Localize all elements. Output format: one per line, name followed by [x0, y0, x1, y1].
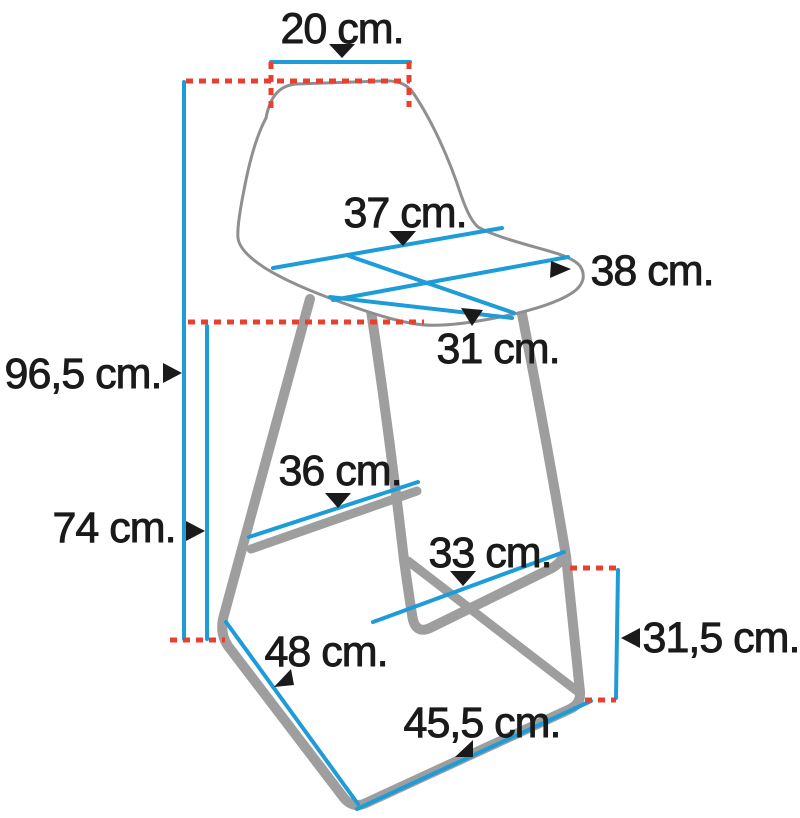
- label-base-side-length: 48 cm.: [264, 628, 387, 676]
- label-seat-depth: 38 cm.: [590, 247, 713, 295]
- dimension-line-31-5cm: [616, 570, 618, 698]
- arrow-right-icon: [186, 521, 205, 541]
- label-footrest-to-floor-height: 31,5 cm.: [643, 614, 800, 662]
- label-seat-width: 37 cm.: [343, 189, 466, 237]
- label-backrest-top-width: 20 cm.: [280, 5, 403, 53]
- label-seat-height: 74 cm.: [52, 504, 175, 552]
- label-total-height: 96,5 cm.: [5, 350, 162, 398]
- arrow-left-icon: [621, 628, 640, 648]
- label-footrest-front-width: 33 cm.: [428, 529, 551, 577]
- bar-stool-dimension-diagram: 20 cm. 37 cm. 38 cm. 31 cm. 96,5 cm. 74 …: [0, 0, 800, 818]
- arrow-right-icon: [163, 363, 182, 383]
- label-seat-front-width: 31 cm.: [436, 325, 559, 373]
- diagram-canvas: 20 cm. 37 cm. 38 cm. 31 cm. 96,5 cm. 74 …: [0, 0, 800, 818]
- label-base-front-length: 45,5 cm.: [404, 699, 561, 747]
- label-footrest-rear-width: 36 cm.: [278, 447, 401, 495]
